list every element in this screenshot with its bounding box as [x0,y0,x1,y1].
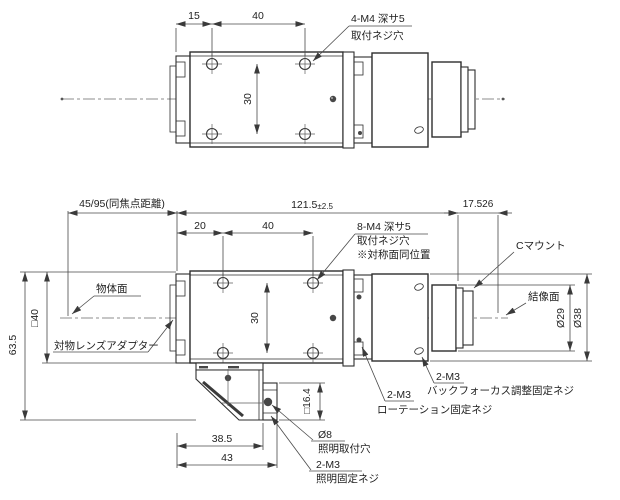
label-8m4-line1: 8-M4 深サ5 [357,221,411,233]
dim-text-sq16-4: □16.4 [302,388,313,414]
label-8m4-line2: 取付ネジ穴 [357,234,410,247]
label-objective-adapter: 対物レンズアダプター [54,339,159,352]
label-8m4-line3: ※対称面同位置 [357,248,431,261]
dim-text-dia29: Ø29 [555,308,567,328]
illumination-hole-icon [264,398,272,406]
body-screw-icon [330,96,336,102]
side-lens-barrel [343,270,473,366]
set-screw-icon [358,131,362,135]
side-camera-body [190,271,343,363]
label-4m4-line1: 4-M4 深サ5 [351,13,405,25]
label-c-mount: Cマウント [516,240,566,252]
label-4m4-line2: 取付ネジ穴 [351,29,404,42]
dim-text-dia38: Ø38 [572,308,584,328]
centerline-dot [61,98,64,101]
dim-text-43: 43 [221,452,233,464]
rotation-screw-icon [357,295,362,300]
dim-text-flange-back: 17.526 [463,199,494,210]
label-image-plane: 結像面 [528,290,560,303]
rotation-screw-icon [357,338,362,343]
label-illum-hole-line1: Ø8 [318,429,332,441]
label-rotation-line2: ローテーション固定ネジ [377,403,492,416]
label-rotation-line1: 2-M3 [387,389,411,401]
dim-text-30: 30 [249,312,261,324]
label-object-plane: 物体面 [96,282,128,295]
label-backfocus-line2: バックフォーカス調整固定ネジ [427,384,574,397]
dim-text-38-5: 38.5 [212,433,233,445]
dim-text-sq40: □40 [29,309,41,327]
label-illum-screw-line2: 照明固定ネジ [316,472,379,485]
centerline-dot [502,98,505,101]
dim-text-40: 40 [262,220,274,232]
label-backfocus-line1: 2-M3 [436,371,460,383]
dim-text-20: 20 [194,220,206,232]
dim-text-15: 15 [188,10,200,22]
dim-text-parfocal: 45/95(同焦点距離) [79,197,165,210]
dim-text-63-5: 63.5 [7,335,19,356]
technical-drawing-page: 15 40 30 4-M4 深サ5 取付ネジ穴 [0,0,620,500]
body-screw-icon [330,315,336,321]
label-illum-screw-line1: 2-M3 [316,459,340,471]
top-lens-barrel [343,52,475,148]
label-illum-hole-line2: 照明取付穴 [318,442,371,455]
camera-dimension-drawing: 15 40 30 4-M4 深サ5 取付ネジ穴 [0,0,620,500]
screw-highlight [331,97,333,99]
dim-text-40: 40 [252,10,264,22]
dim-text-30: 30 [242,93,254,105]
